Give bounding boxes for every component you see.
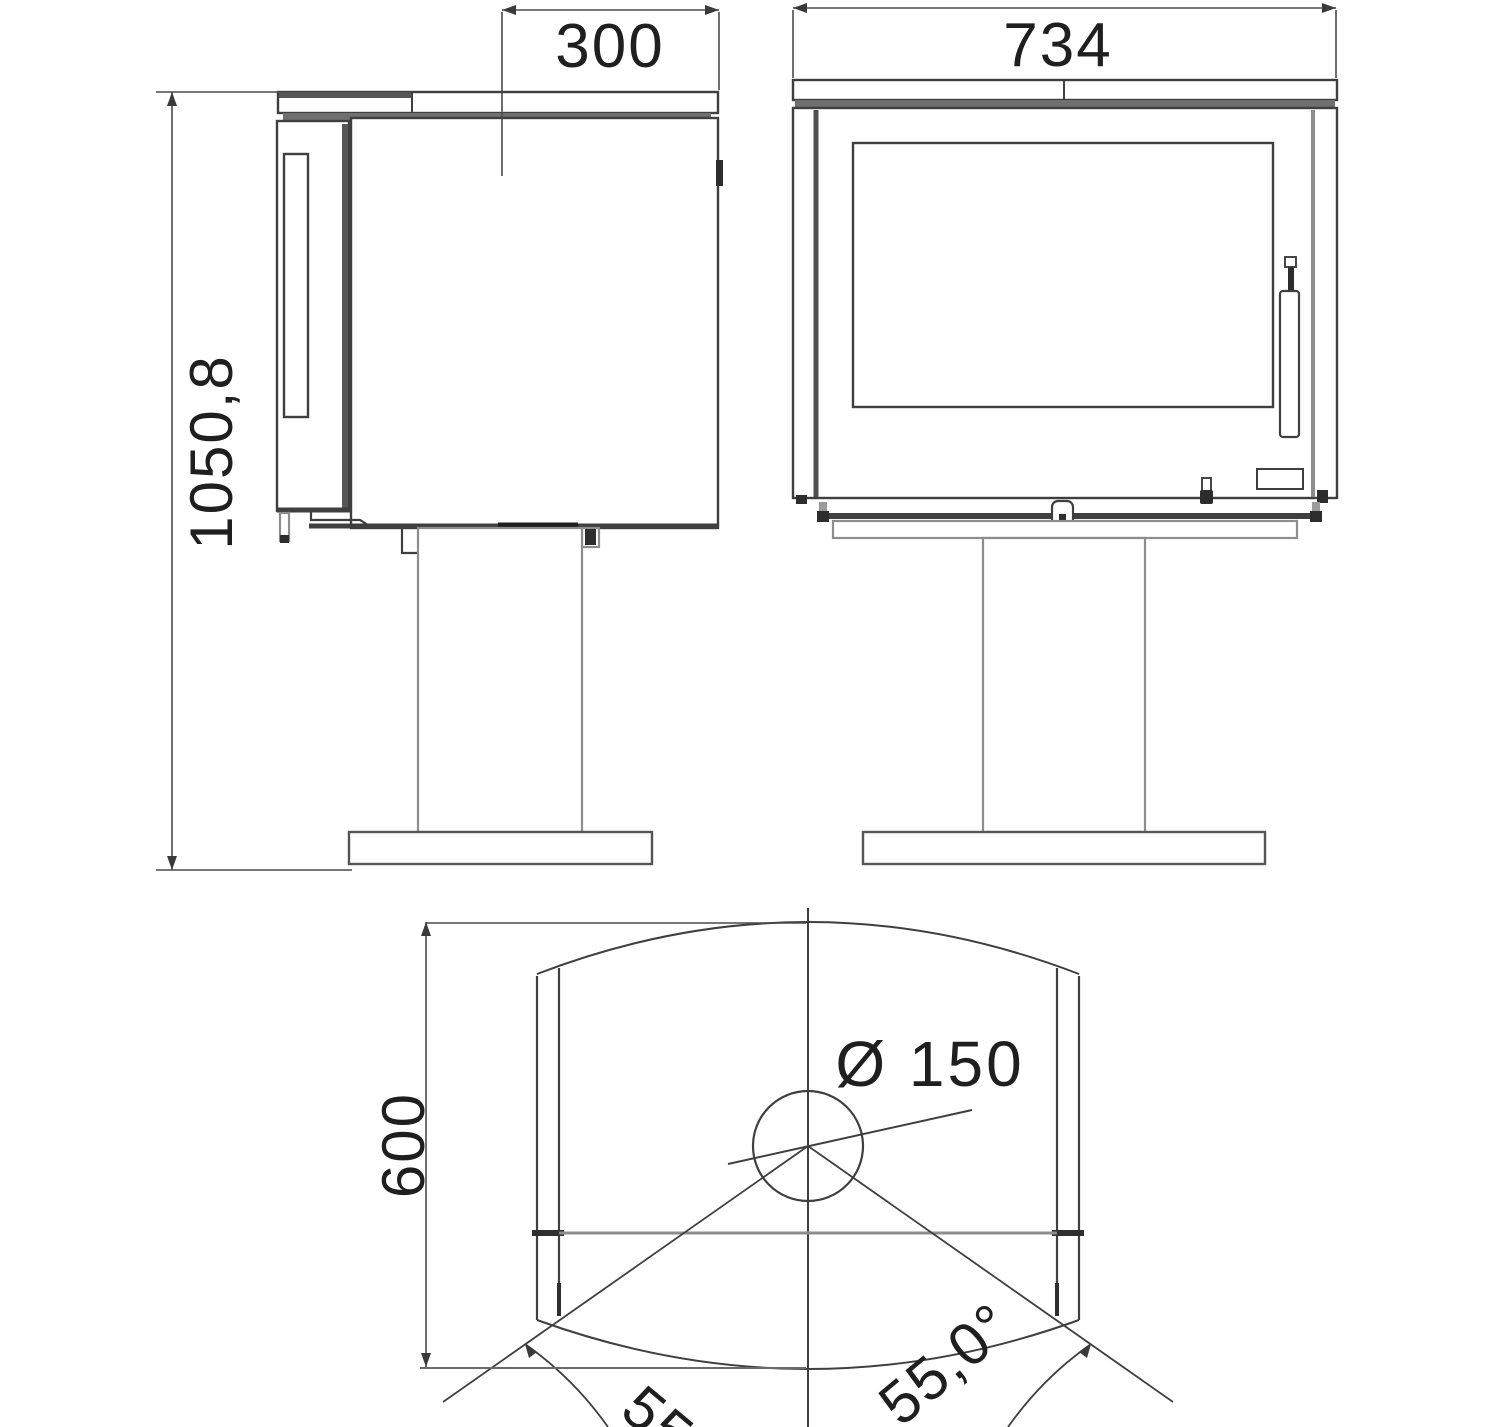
angle-label-right: 55,0° [866,1290,1025,1427]
front-view [793,80,1337,864]
rotation-angle-right-arc [1008,1344,1091,1427]
front-bolt-right-shaft [1312,502,1320,512]
angle-label-left: 55 [610,1373,707,1427]
angle-arrow-left [525,1344,537,1358]
front-handle-tip [1285,257,1296,267]
flue-diameter-label: Ø 150 [835,1028,1024,1100]
front-mounting-plate [833,521,1297,538]
side-pedestal-bracket-left [402,528,418,553]
angle-arrow-right [1079,1344,1091,1358]
front-pedestal-column [983,538,1145,832]
plan-view [443,908,1173,1427]
flue-diameter-leader [728,1110,972,1164]
front-bolt-left-head [817,511,829,522]
front-door-handle [1280,291,1299,437]
side-pedestal-bracket-right-dark [585,529,596,545]
dim-front-width: 734 [793,3,1336,80]
overall-height-label: 1050,8 [178,354,245,550]
side-view [277,92,723,864]
side-pedestal-column [418,528,582,832]
rotation-angle-left-line [443,1146,808,1402]
front-base-plate [863,832,1265,864]
front-width-label: 734 [1003,11,1112,80]
front-foot-right [1317,490,1328,503]
side-handle-tick [716,160,723,186]
plan-depth-label: 600 [370,1092,437,1198]
side-door-glass [284,154,308,417]
drawing-canvas: 1050,8 300 734 600 [0,0,1500,1427]
front-bolt-right-head [1310,511,1322,522]
rotation-angle-left-arc [525,1344,608,1427]
front-foot-left [796,495,807,504]
side-body [351,118,718,528]
side-base-plate [349,832,652,864]
front-door-glass [853,143,1273,407]
side-front-foot-tip [280,535,289,543]
stove-dimension-drawing: 1050,8 300 734 600 [0,0,1500,1427]
front-handle-stem [1288,266,1294,293]
front-bolt-left-shaft [819,502,827,512]
front-door-key-head [1200,490,1213,504]
top-depth-label: 300 [555,12,664,81]
front-door-key [1202,478,1211,492]
